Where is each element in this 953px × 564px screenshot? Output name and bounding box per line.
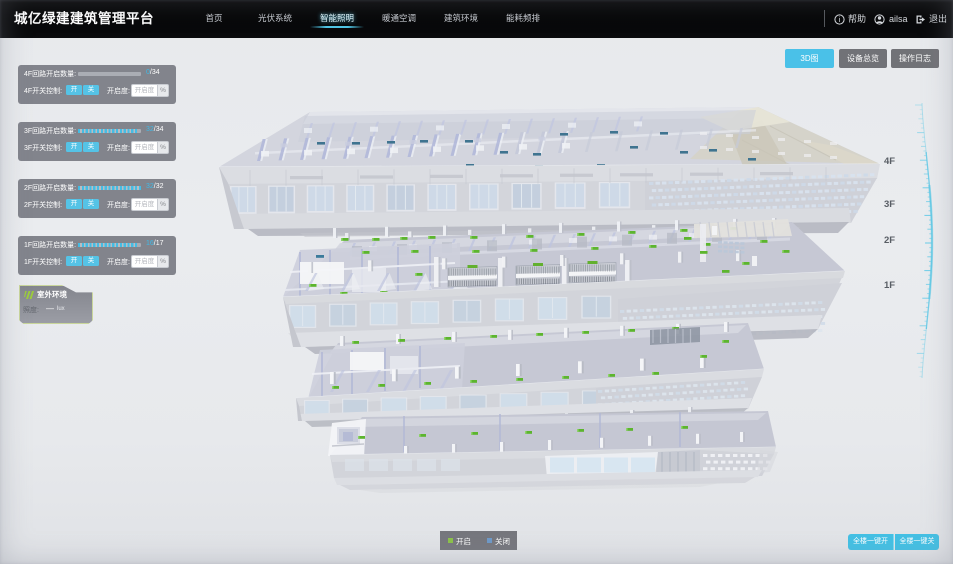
svg-text:i: i	[839, 15, 841, 24]
